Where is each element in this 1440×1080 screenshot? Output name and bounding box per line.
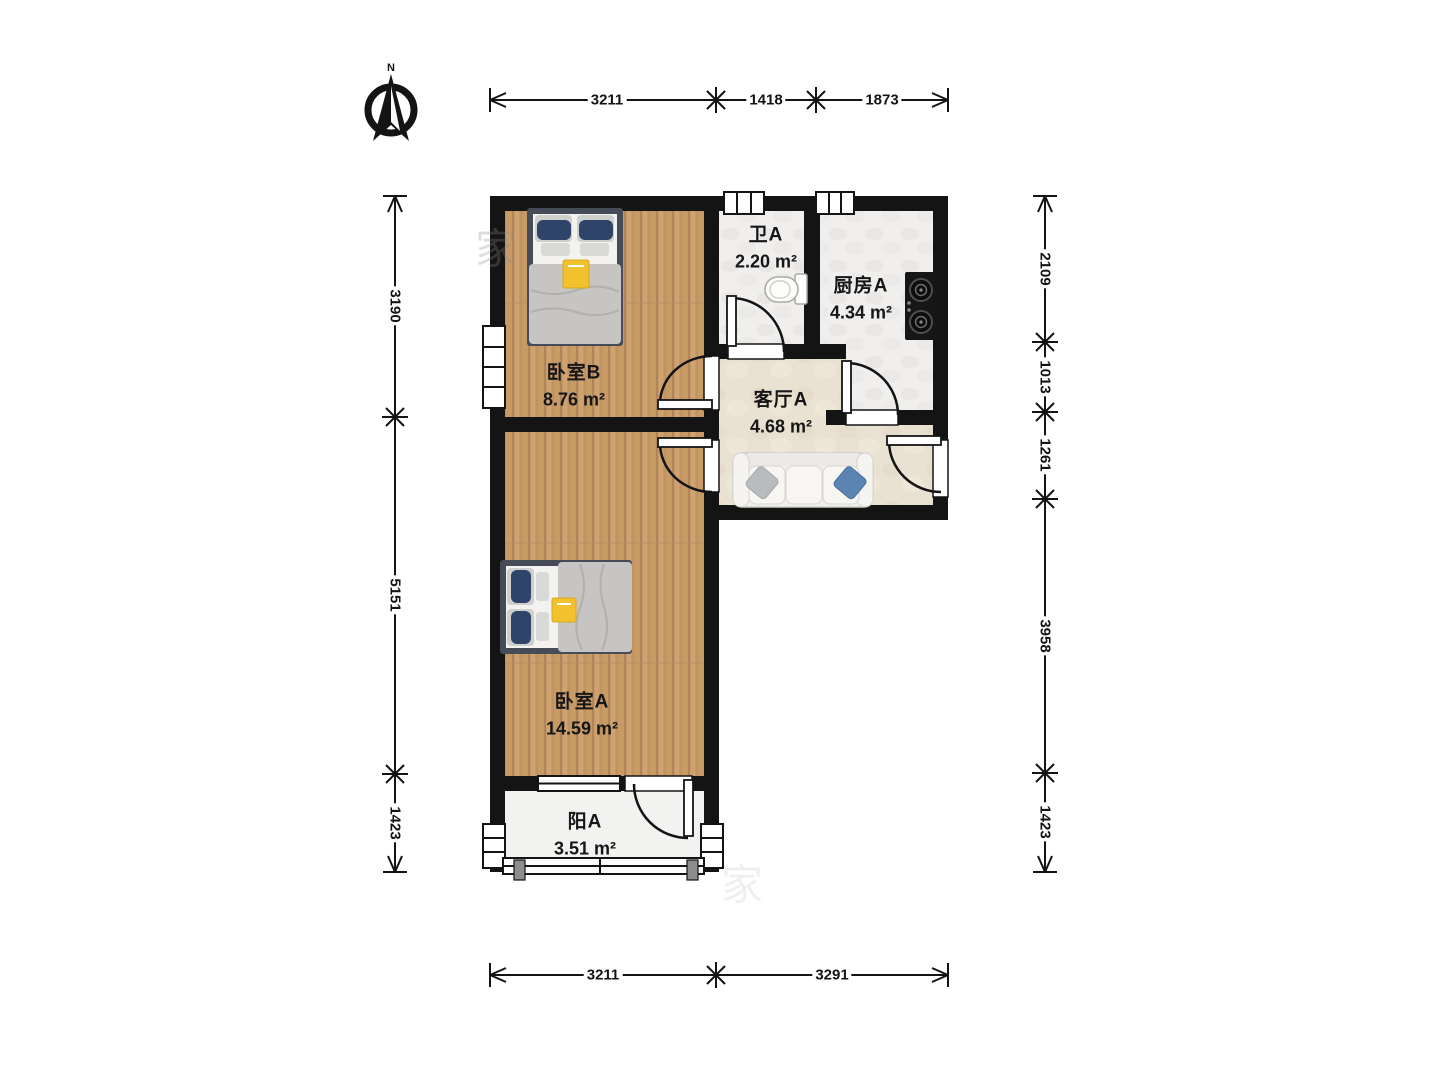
dim-right-1: 2109	[1037, 249, 1054, 288]
room-label-balcony-a: 阳A 3.51 m²	[554, 807, 616, 860]
room-name: 卫A	[735, 220, 797, 247]
floor-plan-page: N 家 家 卧室B 8.76 m² 卫A 2.20 m² 厨房A 4.34 m²…	[0, 0, 1440, 1080]
dim-right-2: 1013	[1037, 357, 1054, 396]
room-area: 4.34 m²	[830, 303, 892, 324]
window-kitchen-top-icon	[816, 192, 854, 214]
dim-right-4: 3958	[1037, 616, 1054, 655]
room-name: 阳A	[554, 807, 616, 834]
dim-bottom-2: 3291	[812, 967, 851, 984]
room-name: 厨房A	[830, 271, 892, 298]
room-name: 卧室A	[546, 687, 618, 714]
room-label-bedroom-b: 卧室B 8.76 m²	[543, 358, 605, 411]
toilet-icon	[765, 274, 807, 304]
room-name: 客厅A	[750, 385, 812, 412]
double-bed-icon	[500, 560, 632, 654]
room-area: 4.68 m²	[750, 417, 812, 438]
dim-left-2: 5151	[387, 575, 404, 614]
window-balcony-left-icon	[483, 824, 505, 868]
room-area: 14.59 m²	[546, 719, 618, 740]
room-label-bedroom-a: 卧室A 14.59 m²	[546, 687, 618, 740]
window-bedroom-b-left-icon	[483, 326, 505, 408]
double-bed-icon	[527, 208, 623, 346]
floor-plan-canvas	[0, 0, 1440, 1080]
wall-center-column	[704, 196, 719, 872]
room-label-kitchen-a: 厨房A 4.34 m²	[830, 271, 892, 324]
dim-top-3: 1873	[862, 92, 901, 109]
dim-left-1: 3190	[387, 286, 404, 325]
wall-bedroomB-bedroomA	[490, 417, 719, 432]
dim-left-3: 1423	[387, 803, 404, 842]
room-name: 卧室B	[543, 358, 605, 385]
room-area: 8.76 m²	[543, 390, 605, 411]
opening-kitchen	[846, 410, 898, 425]
dim-right-3: 1261	[1037, 435, 1054, 474]
north-compass-icon	[368, 74, 414, 141]
stove-icon	[905, 272, 937, 340]
window-bedroomA-balcony-icon	[538, 776, 620, 791]
wall-left	[490, 196, 505, 872]
window-balcony-bottom-icon	[503, 858, 704, 880]
opening-entry	[933, 440, 948, 497]
window-bath-top-icon	[724, 192, 764, 214]
compass-north-label: N	[387, 62, 395, 74]
dim-right-5: 1423	[1037, 802, 1054, 841]
room-label-living-a: 客厅A 4.68 m²	[750, 385, 812, 438]
room-label-bath-a: 卫A 2.20 m²	[735, 220, 797, 273]
dim-top-1: 3211	[588, 92, 627, 109]
room-area: 3.51 m²	[554, 839, 616, 860]
dim-top-2: 1418	[746, 92, 785, 109]
room-area: 2.20 m²	[735, 252, 797, 273]
dim-bottom-1: 3211	[584, 967, 623, 984]
sofa-icon	[733, 453, 873, 507]
